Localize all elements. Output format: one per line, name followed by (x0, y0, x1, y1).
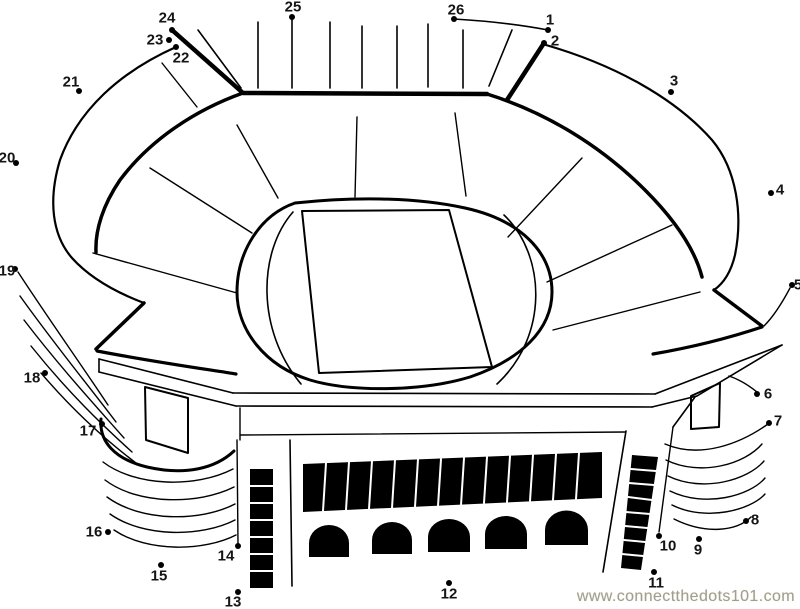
dot-number-label-24: 24 (159, 11, 176, 26)
puzzle-dot-24[interactable] (169, 27, 175, 33)
dot-number-label-12: 12 (441, 587, 458, 602)
dot-number-label-17: 17 (80, 424, 97, 439)
dot-number-label-6: 6 (764, 387, 772, 402)
dots-layer: 1234567891011121314151617181920212223242… (0, 0, 800, 609)
puzzle-dot-23[interactable] (166, 37, 172, 43)
puzzle-dot-18[interactable] (42, 370, 48, 376)
dot-number-label-19: 19 (0, 264, 15, 279)
dot-number-label-5: 5 (794, 278, 800, 293)
dot-number-label-1: 1 (546, 13, 554, 28)
puzzle-dot-2[interactable] (541, 40, 547, 46)
puzzle-dot-7[interactable] (766, 420, 772, 426)
dot-number-label-9: 9 (694, 543, 702, 558)
dot-number-label-14: 14 (218, 549, 235, 564)
dot-number-label-25: 25 (285, 0, 302, 15)
dot-number-label-22: 22 (173, 51, 190, 66)
puzzle-dot-6[interactable] (754, 391, 760, 397)
puzzle-dot-17[interactable] (99, 421, 105, 427)
dot-number-label-15: 15 (151, 569, 168, 584)
puzzle-dot-4[interactable] (768, 190, 774, 196)
dot-number-label-2: 2 (551, 34, 559, 49)
dot-number-label-4: 4 (776, 183, 784, 198)
dot-number-label-3: 3 (670, 74, 678, 89)
puzzle-dot-16[interactable] (105, 529, 111, 535)
dot-number-label-13: 13 (225, 595, 242, 609)
dot-number-label-10: 10 (660, 539, 677, 554)
dot-number-label-16: 16 (86, 525, 103, 540)
dot-number-label-21: 21 (63, 75, 80, 90)
puzzle-dot-3[interactable] (668, 89, 674, 95)
dot-number-label-8: 8 (751, 513, 759, 528)
puzzle-page: 1234567891011121314151617181920212223242… (0, 0, 800, 609)
dot-number-label-23: 23 (147, 33, 164, 48)
watermark-text: www.connectthedots101.com (577, 588, 795, 606)
dot-number-label-7: 7 (774, 414, 782, 429)
puzzle-dot-14[interactable] (235, 543, 241, 549)
dot-number-label-18: 18 (24, 371, 41, 386)
puzzle-dot-8[interactable] (743, 518, 749, 524)
dot-number-label-20: 20 (0, 151, 15, 166)
dot-number-label-26: 26 (448, 3, 465, 18)
